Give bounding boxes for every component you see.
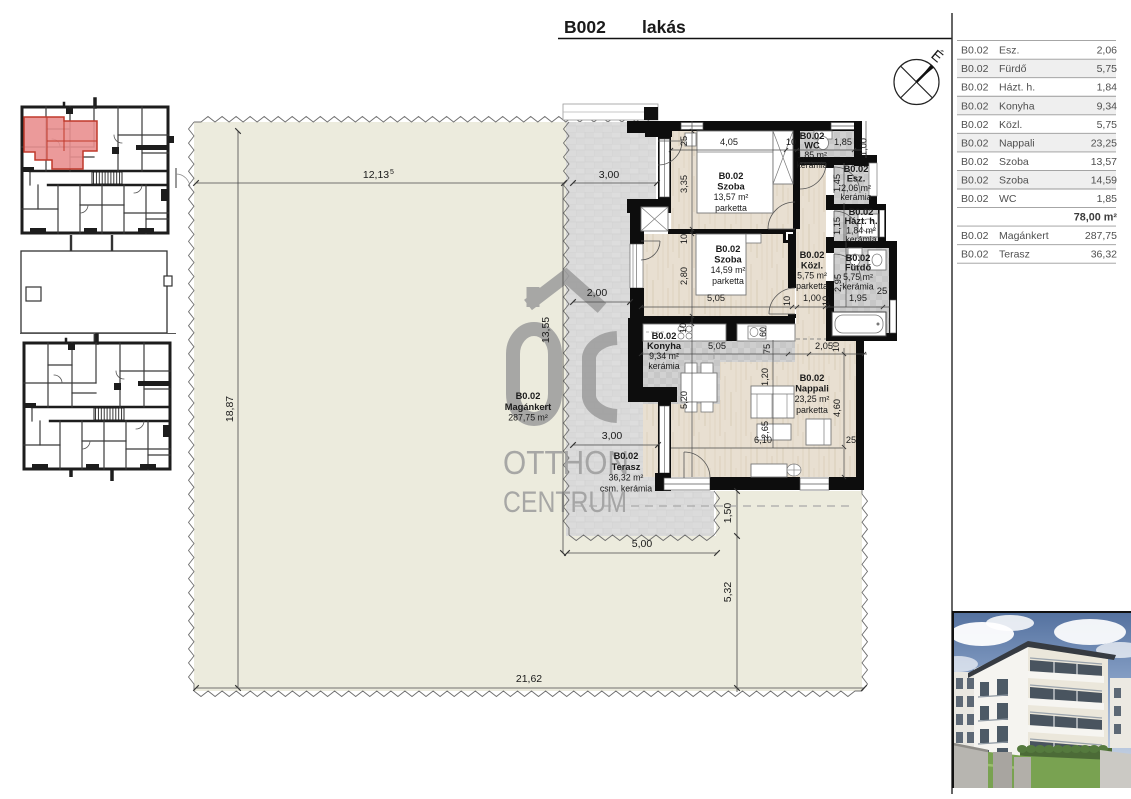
svg-text:Terasz: Terasz bbox=[999, 249, 1030, 261]
svg-text:Közl.: Közl. bbox=[801, 260, 823, 270]
svg-text:3,00: 3,00 bbox=[599, 169, 620, 181]
svg-text:1,15: 1,15 bbox=[832, 217, 842, 235]
svg-text:1,85: 1,85 bbox=[834, 137, 852, 147]
svg-text:5,00: 5,00 bbox=[632, 538, 653, 550]
svg-text:kerámia: kerámia bbox=[845, 235, 876, 245]
svg-text:10: 10 bbox=[679, 234, 689, 244]
svg-text:3,00: 3,00 bbox=[602, 430, 623, 442]
svg-text:parketta: parketta bbox=[715, 203, 747, 213]
svg-text:10: 10 bbox=[678, 323, 688, 333]
svg-text:Szoba: Szoba bbox=[999, 156, 1029, 168]
svg-text:21,62: 21,62 bbox=[516, 673, 542, 685]
svg-text:12,13: 12,13 bbox=[363, 169, 389, 181]
svg-text:25: 25 bbox=[877, 286, 888, 297]
svg-text:B0.02: B0.02 bbox=[961, 174, 989, 186]
svg-text:B0.02: B0.02 bbox=[961, 119, 989, 131]
svg-text:Szoba: Szoba bbox=[714, 255, 742, 265]
svg-text:B0.02: B0.02 bbox=[961, 193, 989, 205]
svg-text:B0.02: B0.02 bbox=[716, 244, 741, 254]
svg-text:36,32 m²: 36,32 m² bbox=[609, 473, 644, 483]
svg-text:kerámia: kerámia bbox=[842, 282, 873, 292]
svg-text:13,55: 13,55 bbox=[540, 317, 552, 343]
svg-text:B0.02: B0.02 bbox=[961, 137, 989, 149]
svg-text:B0.02: B0.02 bbox=[961, 82, 989, 94]
svg-text:5,20: 5,20 bbox=[679, 391, 689, 409]
svg-text:36,32: 36,32 bbox=[1091, 249, 1117, 261]
svg-text:Esz.: Esz. bbox=[999, 45, 1019, 57]
svg-text:1,84: 1,84 bbox=[1097, 82, 1118, 94]
svg-text:B0.02: B0.02 bbox=[961, 100, 989, 112]
svg-text:B0.02: B0.02 bbox=[961, 230, 989, 242]
svg-text:Szoba: Szoba bbox=[999, 174, 1029, 186]
svg-text:10: 10 bbox=[831, 342, 841, 352]
svg-text:4,60: 4,60 bbox=[832, 399, 842, 417]
svg-text:B0.02: B0.02 bbox=[961, 45, 989, 57]
svg-text:Közl.: Közl. bbox=[999, 119, 1022, 131]
svg-text:1,00: 1,00 bbox=[803, 293, 821, 303]
svg-text:5,75: 5,75 bbox=[1097, 119, 1118, 131]
svg-text:9,34 m²: 9,34 m² bbox=[649, 351, 679, 361]
svg-text:13,57 m²: 13,57 m² bbox=[714, 192, 749, 202]
svg-text:60: 60 bbox=[758, 327, 768, 337]
svg-text:1,85: 1,85 bbox=[1097, 193, 1118, 205]
svg-text:parketta: parketta bbox=[796, 405, 828, 415]
svg-text:B0.02: B0.02 bbox=[800, 131, 825, 141]
svg-text:csm. kerámia: csm. kerámia bbox=[600, 483, 652, 493]
svg-text:10: 10 bbox=[786, 137, 796, 147]
svg-text:parketta: parketta bbox=[712, 276, 744, 286]
svg-text:B0.02: B0.02 bbox=[961, 63, 989, 75]
svg-text:kerámia: kerámia bbox=[840, 192, 871, 202]
svg-text:18,87: 18,87 bbox=[224, 396, 236, 422]
svg-text:5,32: 5,32 bbox=[722, 582, 734, 603]
svg-text:Fürdő: Fürdő bbox=[845, 263, 872, 273]
svg-text:5,75: 5,75 bbox=[1097, 63, 1118, 75]
svg-text:5,05: 5,05 bbox=[707, 293, 725, 303]
svg-text:B0.02: B0.02 bbox=[614, 451, 639, 461]
svg-text:Konyha: Konyha bbox=[647, 341, 682, 351]
svg-text:Fürdő: Fürdő bbox=[999, 63, 1027, 75]
svg-text:1,00: 1,00 bbox=[859, 138, 869, 156]
svg-text:5: 5 bbox=[390, 169, 394, 176]
svg-text:10: 10 bbox=[782, 296, 792, 306]
svg-text:3,35: 3,35 bbox=[679, 175, 689, 193]
svg-text:287,75 m²: 287,75 m² bbox=[508, 413, 548, 423]
svg-text:5,05: 5,05 bbox=[708, 341, 726, 351]
svg-text:parketta: parketta bbox=[796, 281, 828, 291]
svg-text:WC: WC bbox=[999, 193, 1017, 205]
svg-text:B002: B002 bbox=[564, 17, 606, 37]
svg-text:B0.02: B0.02 bbox=[516, 391, 541, 401]
svg-text:5,75 m²: 5,75 m² bbox=[797, 271, 827, 281]
svg-text:2,80: 2,80 bbox=[679, 267, 689, 285]
svg-text:14,59 m²: 14,59 m² bbox=[711, 265, 746, 275]
svg-text:14,59: 14,59 bbox=[1091, 174, 1117, 186]
svg-text:78,00 m²: 78,00 m² bbox=[1074, 212, 1118, 224]
svg-text:23,25 m²: 23,25 m² bbox=[795, 394, 830, 404]
svg-text:Szoba: Szoba bbox=[717, 182, 745, 192]
svg-text:13,57: 13,57 bbox=[1091, 156, 1117, 168]
svg-text:B0.02: B0.02 bbox=[800, 250, 825, 260]
svg-text:Magánkert: Magánkert bbox=[999, 230, 1049, 242]
svg-text:10: 10 bbox=[821, 296, 831, 306]
svg-text:B0.02: B0.02 bbox=[961, 156, 989, 168]
svg-text:kerámia: kerámia bbox=[796, 160, 827, 170]
svg-text:25: 25 bbox=[846, 435, 856, 445]
svg-text:B0.02: B0.02 bbox=[846, 253, 871, 263]
svg-text:2,00: 2,00 bbox=[587, 287, 608, 299]
svg-text:5,75 m²: 5,75 m² bbox=[843, 272, 873, 282]
svg-text:kerámia: kerámia bbox=[648, 361, 679, 371]
svg-text:9,34: 9,34 bbox=[1097, 100, 1118, 112]
svg-text:Házt. h.: Házt. h. bbox=[999, 82, 1035, 94]
svg-text:6,10: 6,10 bbox=[754, 435, 772, 445]
svg-text:75: 75 bbox=[762, 344, 772, 354]
svg-text:WC: WC bbox=[804, 141, 820, 151]
svg-text:1,85 m²: 1,85 m² bbox=[797, 150, 827, 160]
svg-text:B0.02: B0.02 bbox=[719, 171, 744, 181]
svg-text:287,75: 287,75 bbox=[1085, 230, 1117, 242]
svg-text:Magánkert: Magánkert bbox=[505, 402, 552, 412]
svg-text:2,06: 2,06 bbox=[1097, 45, 1118, 57]
svg-text:4,05: 4,05 bbox=[720, 137, 738, 147]
svg-text:lakás: lakás bbox=[642, 17, 686, 37]
svg-text:25: 25 bbox=[679, 136, 689, 146]
svg-text:B0.02: B0.02 bbox=[800, 373, 825, 383]
svg-text:23,25: 23,25 bbox=[1091, 137, 1117, 149]
svg-text:B0.02: B0.02 bbox=[652, 331, 677, 341]
svg-text:1,95: 1,95 bbox=[849, 293, 867, 303]
svg-text:B0.02: B0.02 bbox=[961, 249, 989, 261]
svg-text:Konyha: Konyha bbox=[999, 100, 1035, 112]
svg-text:Terasz: Terasz bbox=[612, 462, 641, 472]
svg-text:1,20: 1,20 bbox=[760, 368, 770, 386]
svg-text:Nappali: Nappali bbox=[795, 384, 829, 394]
svg-text:Nappali: Nappali bbox=[999, 137, 1035, 149]
